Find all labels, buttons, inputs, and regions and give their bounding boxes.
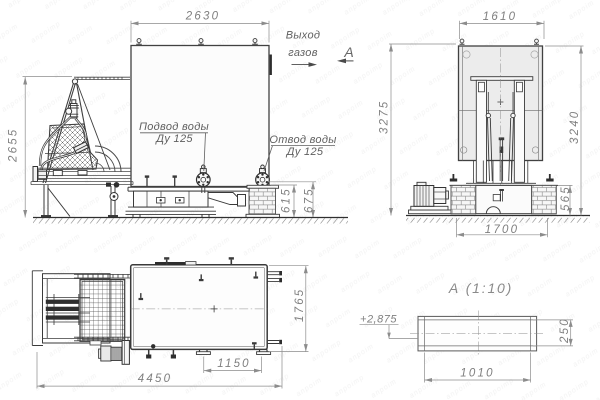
svg-text:+2,875: +2,875 bbox=[360, 314, 397, 326]
svg-text:2655: 2655 bbox=[8, 128, 20, 163]
svg-text:3240: 3240 bbox=[569, 110, 581, 144]
svg-text:675: 675 bbox=[304, 187, 316, 213]
svg-text:Ду 125: Ду 125 bbox=[285, 146, 324, 158]
svg-text:4450: 4450 bbox=[138, 373, 172, 385]
svg-text:Подвод воды: Подвод воды bbox=[139, 121, 209, 133]
svg-text:2630: 2630 bbox=[185, 11, 220, 23]
svg-text:3275: 3275 bbox=[379, 100, 391, 134]
svg-text:1010: 1010 bbox=[460, 368, 494, 380]
svg-text:А: А bbox=[343, 44, 353, 60]
svg-text:Ду 125: Ду 125 bbox=[154, 133, 193, 145]
svg-text:1150: 1150 bbox=[217, 358, 251, 370]
svg-text:565: 565 bbox=[560, 185, 572, 211]
svg-text:1610: 1610 bbox=[483, 11, 517, 23]
svg-text:Выход: Выход bbox=[286, 30, 321, 42]
svg-text:А (1:10): А (1:10) bbox=[448, 280, 513, 296]
svg-text:газов: газов bbox=[288, 47, 318, 59]
svg-text:615: 615 bbox=[281, 187, 293, 213]
svg-text:1700: 1700 bbox=[485, 224, 519, 236]
svg-text:250: 250 bbox=[559, 317, 571, 344]
svg-text:1765: 1765 bbox=[294, 288, 306, 322]
svg-text:Отвод воды: Отвод воды bbox=[269, 134, 336, 146]
